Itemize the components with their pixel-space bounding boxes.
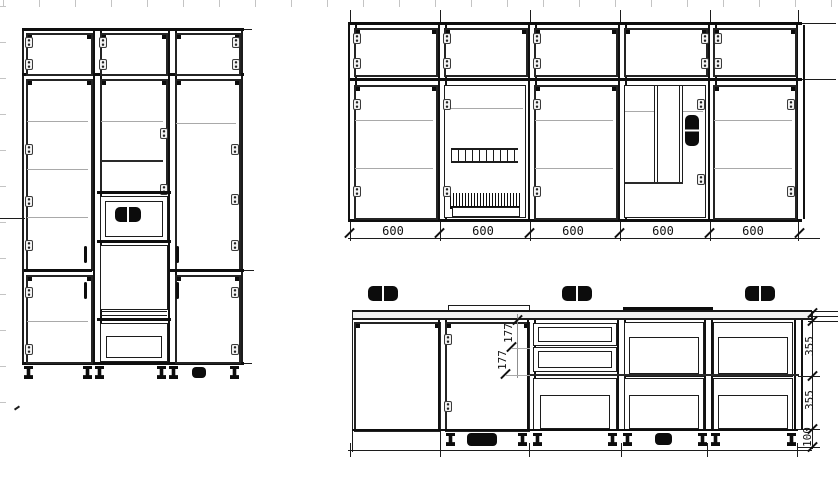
dim-label-177: 177 [503, 319, 515, 347]
shelf-panel [97, 318, 171, 321]
door-handle [84, 246, 87, 263]
mid-door [100, 79, 168, 193]
hinge-icon [443, 33, 451, 44]
drawing-canvas: 600 600 600 600 600 [0, 0, 840, 483]
dim-extension [529, 443, 530, 457]
oven-front [100, 245, 168, 310]
drawer-front [718, 337, 788, 374]
hinge-icon [697, 99, 705, 110]
ruler-ticks-top [3, 0, 833, 7]
cabinet-side-right [241, 31, 243, 362]
dim-label-600: 600 [553, 225, 593, 237]
top-box-door [100, 33, 168, 76]
shelf-line [535, 120, 613, 121]
knob-pair-icon [368, 286, 398, 301]
hinge-icon [25, 196, 33, 207]
leg-foot [446, 433, 455, 446]
shelf-line [625, 111, 654, 112]
wall-door [354, 85, 438, 220]
leg-foot [230, 366, 239, 379]
shelf-line [27, 321, 88, 322]
pantry-door [26, 275, 93, 364]
extension-line [802, 79, 836, 80]
hinge-icon [787, 99, 795, 110]
shelf-line [714, 168, 792, 169]
extension-line [710, 10, 711, 22]
leg-foot [533, 433, 542, 446]
hinge-icon [232, 59, 240, 70]
cabinet-top-panel [348, 22, 802, 25]
hinge-icon [787, 186, 795, 197]
dim-extension [506, 375, 530, 376]
leg-foot [157, 366, 166, 379]
shelf-line [101, 121, 163, 122]
door-handle [84, 282, 87, 299]
dim-label-600: 600 [733, 225, 773, 237]
hinge-icon [533, 33, 541, 44]
leg-foot [24, 366, 33, 379]
door-handle [176, 282, 179, 299]
hinge-icon [231, 240, 239, 251]
hood-knobs-icon [685, 115, 699, 146]
leg-foot [698, 433, 707, 446]
hinge-icon [353, 33, 361, 44]
dim-extension [797, 443, 798, 457]
leg-foot [623, 433, 632, 446]
microwave-knobs-icon [115, 207, 141, 222]
hinge-icon [353, 186, 361, 197]
hood-duct-side [654, 86, 655, 183]
extension-line [440, 10, 441, 22]
hinge-icon [444, 401, 452, 412]
shelf-panel [97, 240, 171, 243]
hood-duct-side [682, 86, 683, 183]
dim-label-600: 600 [463, 225, 503, 237]
hinge-icon [353, 99, 361, 110]
counter-underline [352, 319, 812, 320]
hood-duct-side [657, 86, 658, 183]
hinge-icon [533, 58, 541, 69]
leg-block [467, 433, 497, 446]
hinge-icon [697, 174, 705, 185]
hinge-icon [714, 58, 722, 69]
extension-line [802, 23, 836, 24]
plinth-line [352, 429, 798, 431]
cabinet-divider [796, 25, 805, 219]
top-box-door [444, 28, 528, 77]
leg-foot [95, 366, 104, 379]
door-handle [176, 246, 179, 263]
hinge-icon [99, 37, 107, 48]
stray-mark [14, 405, 20, 410]
dim-label-355: 355 [804, 383, 816, 417]
dim-label-355: 355 [804, 329, 816, 363]
row-divider [348, 78, 802, 81]
drawer-front [718, 395, 788, 429]
hinge-icon [25, 59, 33, 70]
drawer-front [538, 351, 612, 368]
leg-foot [83, 366, 92, 379]
shelf-line [27, 169, 88, 170]
dim-label-600: 600 [643, 225, 683, 237]
dim-label-100: 100 [802, 422, 814, 452]
dim-line [348, 238, 820, 239]
extension-line [244, 363, 252, 364]
leg-foot [608, 433, 617, 446]
wall-door [713, 85, 797, 220]
hinge-icon [443, 99, 451, 110]
extension-line [244, 29, 252, 30]
dim-extension [440, 443, 441, 457]
dim-extension [707, 443, 708, 457]
dish-rack [451, 148, 518, 163]
hinge-icon [533, 186, 541, 197]
floor-dim-line [348, 450, 812, 451]
shelf-line [683, 111, 703, 112]
extension-line [244, 270, 254, 271]
side-panel [352, 320, 353, 452]
hinge-icon [25, 37, 33, 48]
hinge-icon [231, 194, 239, 205]
leg-foot [518, 433, 527, 446]
drawer-divider [622, 374, 710, 376]
drawer-front [629, 395, 699, 429]
wall-door [534, 85, 618, 220]
knob-pair-icon [562, 286, 592, 301]
drawer-divider [530, 374, 622, 376]
extension-line [798, 10, 799, 22]
leg-block [655, 433, 672, 445]
top-box-door [354, 28, 438, 77]
shelf-line [535, 168, 613, 169]
drawer-front [540, 395, 610, 429]
base-door [354, 322, 441, 432]
shelf-line [101, 160, 163, 162]
shelf-line [27, 217, 88, 218]
dim-extension [350, 443, 351, 457]
hinge-icon [160, 128, 168, 139]
hinge-icon [444, 334, 452, 345]
hood-bottom-line [625, 182, 683, 184]
leg-foot [711, 433, 720, 446]
leg-block [192, 367, 206, 378]
cabinet-top-panel [22, 28, 244, 31]
drawer-divider [709, 374, 799, 376]
hinge-icon [231, 287, 239, 298]
pantry-door [26, 79, 93, 271]
extension-line [620, 10, 621, 22]
shelf-panel [97, 191, 171, 194]
dim-extension [621, 443, 622, 457]
top-box-door [534, 28, 618, 77]
leg-foot [169, 366, 178, 379]
countertop [352, 310, 812, 319]
shelf-line [27, 121, 88, 122]
hinge-icon [25, 287, 33, 298]
hood-duct-side [679, 86, 680, 183]
hinge-icon [353, 58, 361, 69]
drip-tray [452, 207, 520, 217]
hinge-icon [714, 33, 722, 44]
hinge-icon [99, 59, 107, 70]
extension-line [350, 10, 351, 22]
ruler-ticks-left [0, 6, 6, 408]
dim-label-177: 177 [497, 346, 509, 374]
oven-trim-line [100, 311, 167, 312]
top-box-door [26, 33, 93, 76]
shelf-line [355, 120, 433, 121]
hinge-icon [533, 99, 541, 110]
hood-cabinet-interior [624, 85, 706, 218]
oven-trim-line [100, 315, 167, 316]
shelf-line [714, 120, 792, 121]
hinge-icon [25, 144, 33, 155]
shelf-line [355, 168, 433, 169]
drawer-front [106, 336, 162, 358]
hinge-icon [232, 37, 240, 48]
dim-line [517, 314, 518, 378]
cabinet-side-left [22, 31, 24, 362]
hinge-icon [231, 344, 239, 355]
shelf-line [176, 123, 236, 124]
knob-pair-icon [745, 286, 775, 301]
hinge-icon [443, 186, 451, 197]
extension-line [530, 10, 531, 22]
shelf-line [445, 108, 523, 109]
drawer-front [629, 337, 699, 374]
dim-extension [512, 348, 530, 349]
hinge-icon [231, 144, 239, 155]
hinge-icon [25, 344, 33, 355]
drawer-front [538, 327, 612, 342]
dim-label-600: 600 [373, 225, 413, 237]
top-box-door [624, 28, 708, 77]
dim-tick [794, 228, 805, 239]
door-split-line [170, 269, 244, 272]
top-box-door [713, 28, 797, 77]
hinge-icon [701, 33, 709, 44]
hinge-icon [701, 58, 709, 69]
door-split-line [24, 269, 92, 272]
hinge-icon [25, 240, 33, 251]
hinge-icon [443, 58, 451, 69]
leg-foot [787, 433, 796, 446]
